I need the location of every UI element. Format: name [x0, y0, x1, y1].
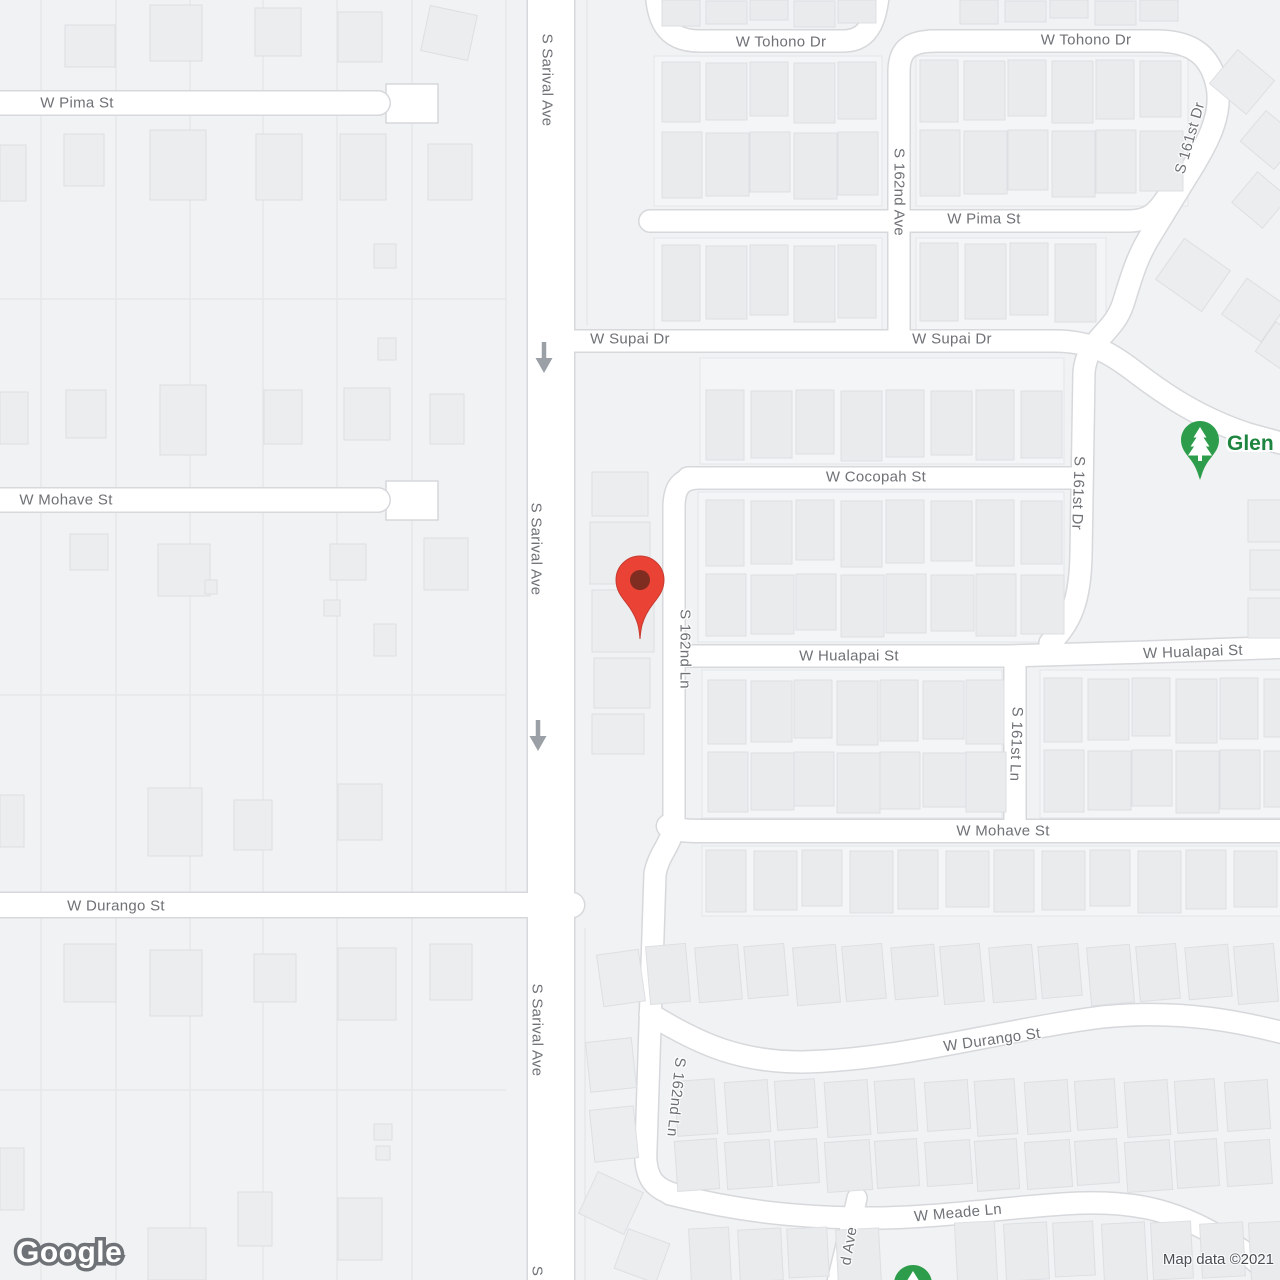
- tree-icon: [1178, 419, 1222, 481]
- map-attribution: Map data ©2021: [1163, 1251, 1274, 1268]
- street-label: W Supai Dr: [912, 331, 992, 348]
- street-label: S 162nd Ave: [891, 148, 908, 236]
- street-label: S Sarival Ave: [529, 984, 546, 1077]
- street-label: W Supai Dr: [590, 331, 670, 348]
- destination-pin[interactable]: [612, 553, 668, 643]
- street-label: W Mohave St: [956, 823, 1049, 840]
- street-label: W Tohono Dr: [1041, 32, 1132, 49]
- park-pin[interactable]: [1178, 419, 1222, 481]
- google-logo[interactable]: Google Google: [16, 1236, 122, 1270]
- street-label: W Cocopah St: [826, 469, 926, 486]
- street-label: W Durango St: [67, 898, 165, 915]
- tree-icon: [891, 1263, 935, 1280]
- street-label: S Sarival Ave: [539, 34, 556, 127]
- street-label: W Mohave St: [19, 492, 112, 509]
- street-label: S 161st Ln: [1006, 706, 1026, 781]
- street-label: W Pima St: [40, 95, 114, 112]
- poi-label[interactable]: Glen: [1227, 432, 1274, 456]
- map-canvas[interactable]: W Pima StS Sarival AveW Tohono DrW Tohon…: [0, 0, 1280, 1280]
- street-label: S: [529, 1266, 546, 1276]
- street-label: W Hualapai St: [1143, 642, 1243, 662]
- street-label: S 162nd Ln: [677, 609, 694, 689]
- street-label: S Sarival Ave: [528, 503, 545, 596]
- street-label: W Pima St: [947, 211, 1021, 228]
- street-label: W Hualapai St: [799, 648, 899, 665]
- park-pin[interactable]: [891, 1263, 935, 1280]
- red-pin-icon: [612, 553, 668, 643]
- street-label: S 161st Dr: [1068, 456, 1088, 530]
- street-label: W Tohono Dr: [736, 34, 827, 51]
- google-logo-text: Google: [16, 1236, 122, 1269]
